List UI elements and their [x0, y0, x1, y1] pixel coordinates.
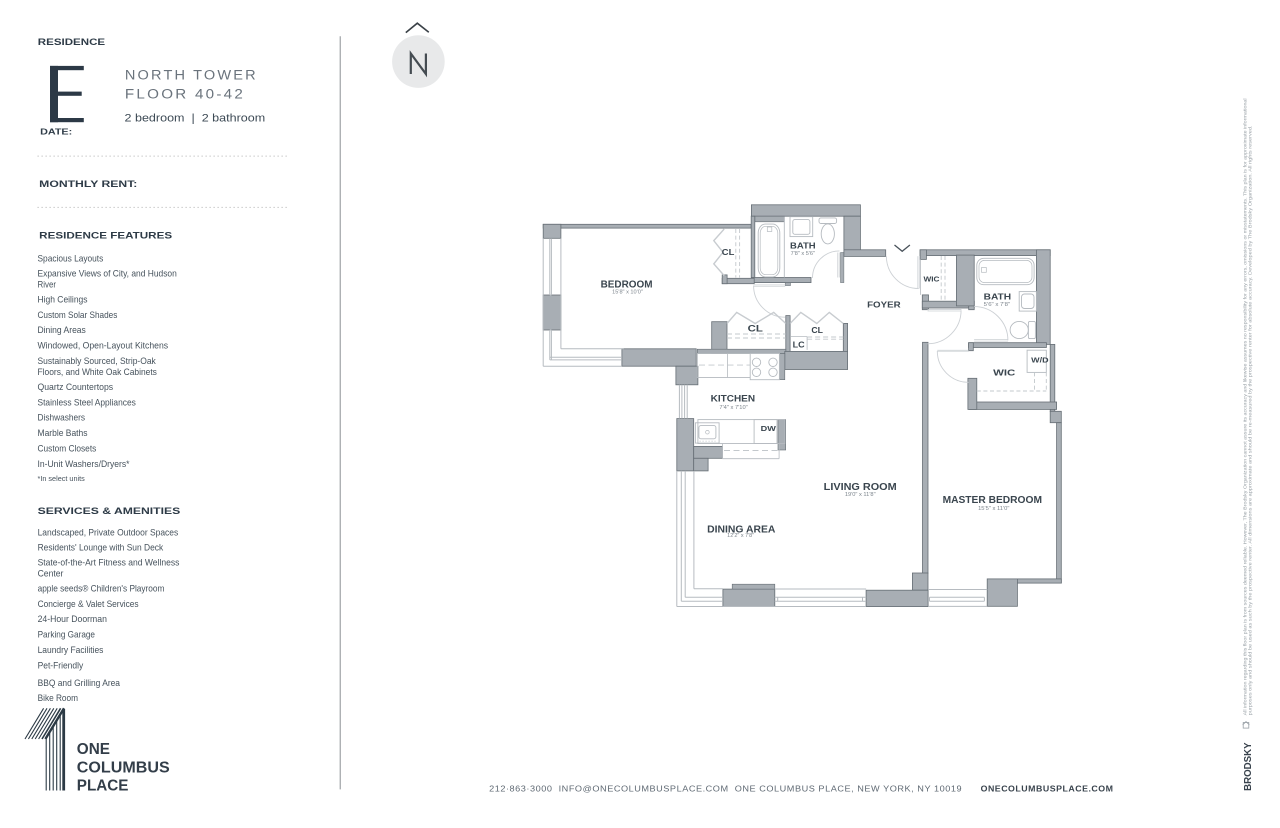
svg-text:Residents' Lounge with Sun Dec: Residents' Lounge with Sun Deck	[38, 542, 164, 553]
svg-text:In-Unit Washers/Dryers*: In-Unit Washers/Dryers*	[38, 458, 130, 469]
svg-text:24-Hour Doorman: 24-Hour Doorman	[38, 613, 107, 624]
svg-text:COLUMBUS: COLUMBUS	[77, 759, 170, 776]
svg-text:Parking Garage: Parking Garage	[38, 629, 95, 640]
svg-text:Expansive Views of City, and H: Expansive Views of City, and Hudson	[38, 268, 177, 279]
svg-text:212·863·3000 INFO@ONECOLUMBUS: 212·863·3000 INFO@ONECOLUMBUSPLACE.COM O…	[489, 783, 962, 793]
svg-text:Concierge & Valet Services: Concierge & Valet Services	[38, 598, 139, 609]
svg-text:12'2" x 7'8": 12'2" x 7'8"	[727, 533, 754, 539]
svg-text:LC: LC	[793, 340, 805, 349]
svg-text:Custom Solar Shades: Custom Solar Shades	[38, 309, 118, 320]
svg-text:7'4" x 7'10": 7'4" x 7'10"	[719, 405, 748, 411]
svg-text:ONECOLUMBUSPLACE.COM: ONECOLUMBUSPLACE.COM	[981, 783, 1114, 793]
svg-text:Dining Areas: Dining Areas	[38, 324, 87, 335]
svg-text:FLOOR 40-42: FLOOR 40-42	[125, 87, 245, 102]
svg-text:FOYER: FOYER	[867, 300, 901, 310]
svg-text:purposes only and should be us: purposes only and should be used as such…	[1248, 125, 1254, 715]
svg-text:BBQ and Grilling Area: BBQ and Grilling Area	[38, 677, 121, 688]
svg-text:CL: CL	[811, 326, 823, 335]
svg-text:WIC: WIC	[924, 274, 941, 283]
svg-text:BATH: BATH	[790, 242, 816, 251]
svg-text:7'8" x 5'6": 7'8" x 5'6"	[791, 251, 816, 257]
svg-text:15'5" x 11'0": 15'5" x 11'0"	[978, 506, 1010, 512]
svg-text:Center: Center	[38, 568, 64, 579]
svg-text:Bike Room: Bike Room	[38, 692, 79, 703]
svg-text:apple seeds® Children's Playro: apple seeds® Children's Playroom	[38, 583, 165, 594]
svg-text:Quartz Countertops: Quartz Countertops	[38, 381, 114, 392]
svg-text:BATH: BATH	[984, 292, 1012, 301]
svg-text:Spacious Layouts: Spacious Layouts	[38, 252, 104, 263]
svg-text:Laundry Facilities: Laundry Facilities	[38, 644, 104, 655]
svg-text:PLACE: PLACE	[77, 777, 129, 794]
svg-text:2 bedroom | 2 bathroom: 2 bedroom | 2 bathroom	[125, 113, 266, 125]
svg-text:MASTER BEDROOM: MASTER BEDROOM	[943, 495, 1042, 506]
svg-text:19'0" x 11'8": 19'0" x 11'8"	[845, 492, 876, 498]
svg-text:ONE: ONE	[77, 741, 110, 758]
svg-text:BRODSKY: BRODSKY	[1242, 742, 1254, 791]
svg-text:WIC: WIC	[993, 368, 1015, 378]
svg-text:CL: CL	[722, 247, 735, 257]
svg-text:DATE:: DATE:	[40, 126, 72, 136]
svg-text:Stainless Steel Appliances: Stainless Steel Appliances	[38, 396, 137, 407]
svg-text:RESIDENCE FEATURES: RESIDENCE FEATURES	[39, 231, 172, 242]
svg-text:Landscaped, Private Outdoor Sp: Landscaped, Private Outdoor Spaces	[38, 526, 179, 537]
svg-text:High Ceilings: High Ceilings	[38, 293, 88, 304]
svg-text:Sustainably Sourced, Strip-Oak: Sustainably Sourced, Strip-Oak	[38, 355, 157, 366]
svg-text:Pet-Friendly: Pet-Friendly	[38, 660, 84, 671]
svg-text:CL: CL	[748, 324, 764, 334]
svg-text:DW: DW	[761, 424, 776, 433]
svg-text:15'8" x 10'0": 15'8" x 10'0"	[612, 290, 643, 296]
svg-text:KITCHEN: KITCHEN	[711, 394, 756, 404]
svg-text:Custom Closets: Custom Closets	[38, 443, 97, 454]
svg-text:*In select units: *In select units	[38, 474, 86, 483]
svg-text:State-of-the-Art Fitness and W: State-of-the-Art Fitness and Wellness	[38, 557, 180, 568]
svg-text:NORTH TOWER: NORTH TOWER	[125, 68, 258, 83]
svg-text:W/D: W/D	[1031, 358, 1048, 365]
svg-text:River: River	[38, 278, 57, 289]
svg-text:Marble Baths: Marble Baths	[38, 427, 88, 438]
svg-text:Windowed, Open-Layout Kitchens: Windowed, Open-Layout Kitchens	[38, 340, 169, 351]
svg-text:SERVICES & AMENITIES: SERVICES & AMENITIES	[38, 506, 181, 517]
svg-text:MONTHLY RENT:: MONTHLY RENT:	[39, 179, 137, 190]
svg-text:Floors, and White Oak Cabinets: Floors, and White Oak Cabinets	[38, 366, 158, 377]
svg-text:5'6" x 7'8": 5'6" x 7'8"	[984, 302, 1011, 308]
svg-text:Dishwashers: Dishwashers	[38, 412, 86, 423]
svg-text:RESIDENCE: RESIDENCE	[38, 37, 105, 48]
